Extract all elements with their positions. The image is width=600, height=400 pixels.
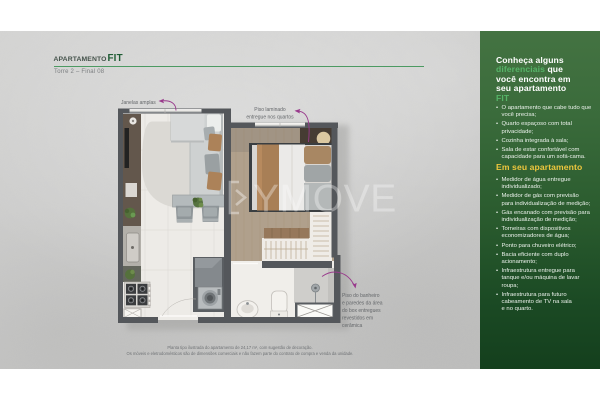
svg-text:Piso do banheiro: Piso do banheiro (342, 293, 380, 299)
svg-text:Janelas amplas: Janelas amplas (121, 100, 156, 106)
svg-text:Piso laminado: Piso laminado (254, 107, 286, 113)
svg-text:entregue nos quartos: entregue nos quartos (246, 115, 294, 121)
svg-text:do box entregues: do box entregues (342, 308, 381, 314)
svg-text:e paredes da área: e paredes da área (342, 301, 383, 307)
svg-text:Os móveis e eletrodomésticos s: Os móveis e eletrodomésticos são de dime… (127, 351, 354, 356)
svg-text:cerâmica: cerâmica (342, 323, 363, 329)
svg-text:YMOVE: YMOVE (253, 178, 397, 221)
svg-text:Planta tipo ilustrada do apart: Planta tipo ilustrada do apartamento de … (167, 345, 312, 350)
svg-text:revestidos em: revestidos em (342, 316, 373, 322)
